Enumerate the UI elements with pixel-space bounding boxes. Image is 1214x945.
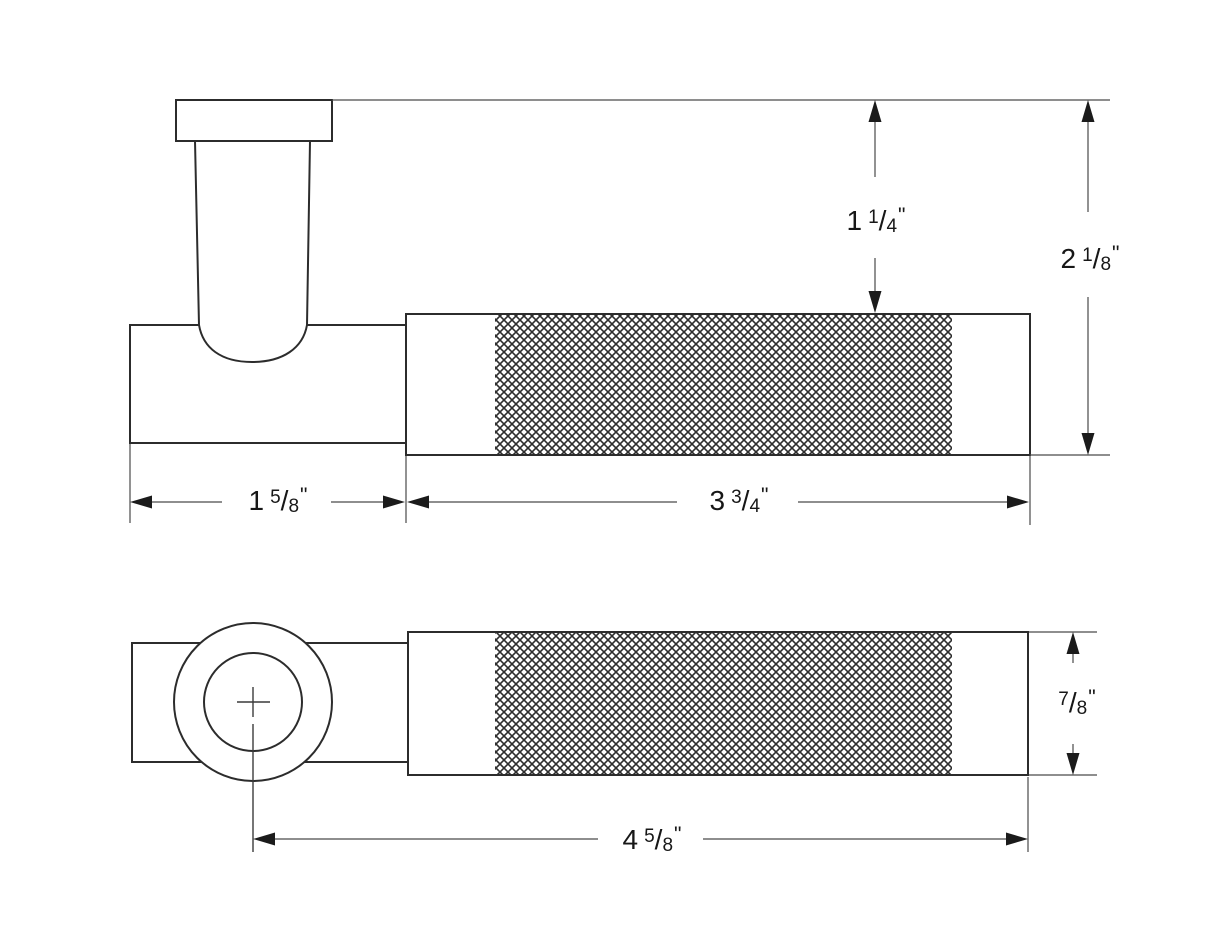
dim-unit: " <box>761 485 766 506</box>
dim-unit: " <box>1112 243 1117 264</box>
dim-denominator: 8 <box>662 836 673 855</box>
arrow-down-knurl-offset <box>869 291 882 313</box>
knurl-grip-side <box>495 315 952 454</box>
arrow-down-overall-height <box>1082 433 1095 455</box>
spindle-stem <box>195 141 310 362</box>
knurl-grip-plan <box>495 633 952 774</box>
technical-drawing-canvas <box>0 0 1214 945</box>
arrow-up-lever-diameter <box>1067 632 1080 654</box>
dim-slash: / <box>1069 689 1077 717</box>
dim-unit: " <box>1088 687 1093 708</box>
arrow-up-knurl-offset <box>869 100 882 122</box>
spindle-cap <box>176 100 332 141</box>
dim-label-overall-height: 21/8" <box>1061 245 1118 273</box>
dim-slash: / <box>281 487 289 515</box>
dim-denominator: 8 <box>1100 255 1111 274</box>
arrow-left-grip-length <box>407 496 429 509</box>
dim-unit: " <box>674 824 679 845</box>
dim-main: 1 <box>249 487 265 515</box>
dim-label-hub-length: 15/8" <box>249 487 306 515</box>
dim-numerator: 1 <box>868 208 879 227</box>
dim-denominator: 4 <box>886 217 897 236</box>
dim-numerator: 7 <box>1058 690 1069 709</box>
dim-numerator: 1 <box>1082 246 1093 265</box>
dim-main: 3 <box>710 487 726 515</box>
arrow-left-overall-length <box>253 833 275 846</box>
dim-numerator: 5 <box>644 827 655 846</box>
dim-denominator: 4 <box>749 497 760 516</box>
technical-drawing-page: 11/4" 21/8" 15/8" 33/4" 7/8" 45/8" <box>0 0 1214 945</box>
dim-slash: / <box>742 487 750 515</box>
arrow-right-overall-length <box>1006 833 1028 846</box>
dim-slash: / <box>1093 245 1101 273</box>
dim-denominator: 8 <box>288 497 299 516</box>
arrow-right-grip-length <box>1007 496 1029 509</box>
dim-main: 4 <box>623 826 639 854</box>
dim-numerator: 5 <box>270 488 281 507</box>
dim-main: 2 <box>1061 245 1077 273</box>
arrow-up-overall-height <box>1082 100 1095 122</box>
dim-unit: " <box>300 485 305 506</box>
arrow-right-hub-length <box>383 496 405 509</box>
dim-slash: / <box>655 826 663 854</box>
dim-label-grip-length: 33/4" <box>710 487 767 515</box>
dim-slash: / <box>879 207 887 235</box>
arrow-down-lever-diameter <box>1067 753 1080 775</box>
arrow-left-hub-length <box>130 496 152 509</box>
dim-label-knurl-to-top: 11/4" <box>847 207 904 235</box>
dim-unit: " <box>898 205 903 226</box>
dim-label-lever-diameter: 7/8" <box>1058 689 1093 717</box>
dim-numerator: 3 <box>731 488 742 507</box>
dim-denominator: 8 <box>1077 699 1088 718</box>
side-elevation-view <box>130 100 1030 455</box>
dim-main: 1 <box>847 207 863 235</box>
dim-label-overall-length: 45/8" <box>623 826 680 854</box>
